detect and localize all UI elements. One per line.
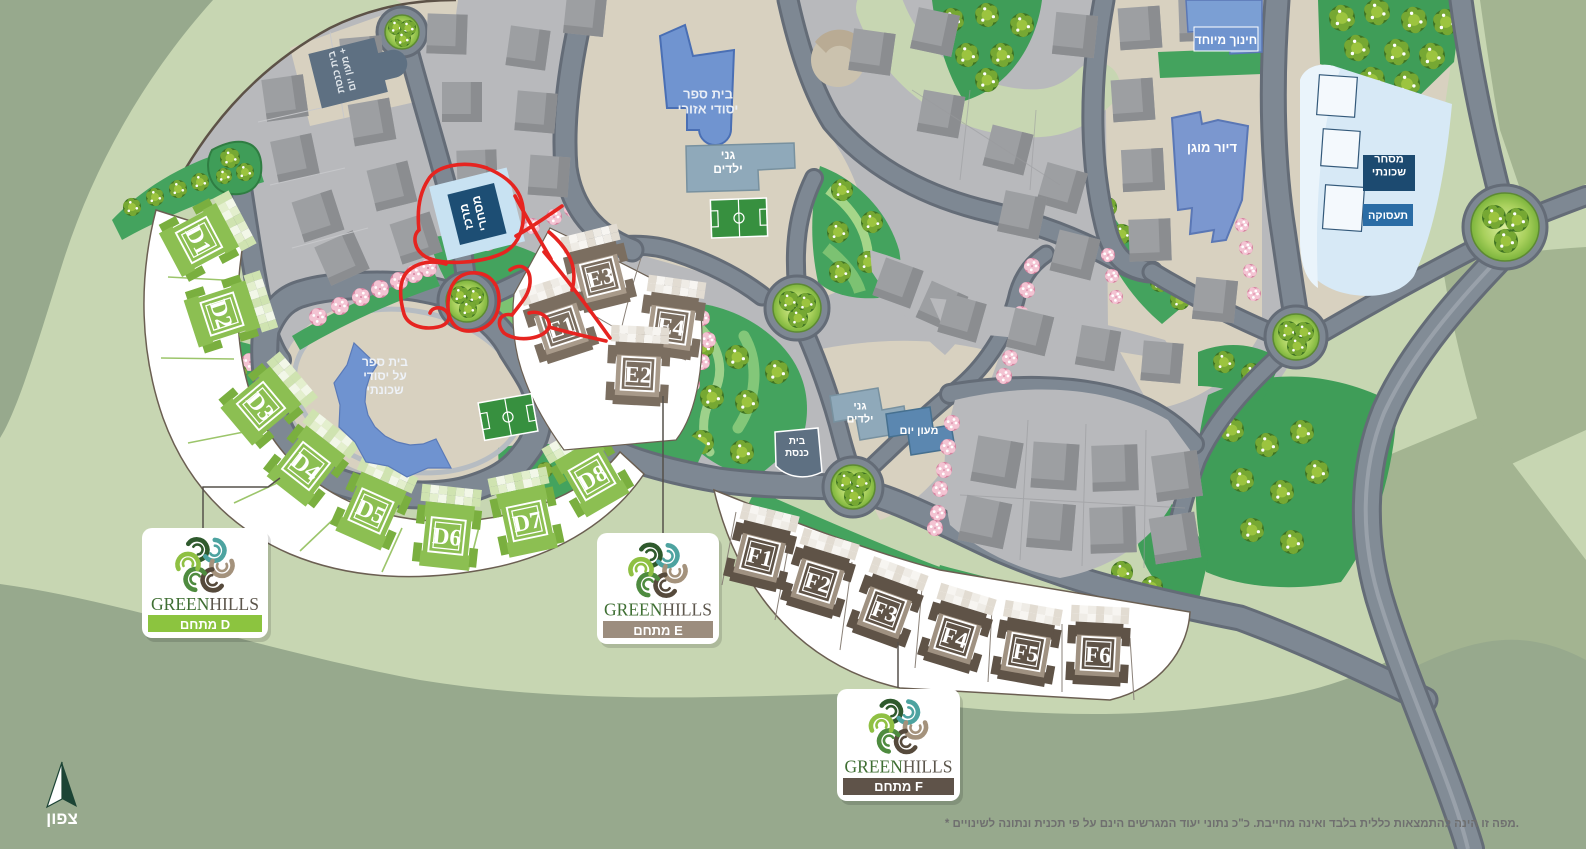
svg-text:ילדים: ילדים (713, 162, 743, 176)
svg-text:ילדים: ילדים (846, 412, 873, 425)
svg-text:גני: גני (721, 148, 736, 162)
svg-text:מעון יום: מעון יום (900, 425, 939, 437)
svg-text:דיור מוגן: דיור מוגן (1187, 140, 1237, 155)
svg-text:בית ספר: בית ספר (362, 355, 408, 369)
svg-text:תעסוקה: תעסוקה (1368, 210, 1408, 222)
svg-text:F5: F5 (1011, 638, 1041, 667)
svg-text:שכונתי: שכונתי (366, 383, 404, 397)
svg-text:שכונתי: שכונתי (1372, 167, 1406, 179)
svg-text:בית ספר: בית ספר (683, 87, 733, 102)
svg-text:צפון: צפון (46, 809, 78, 828)
svg-text:בית: בית (789, 436, 806, 447)
svg-text:חינוך מיוחד: חינוך מיוחד (1195, 33, 1257, 47)
svg-text:מסחר: מסחר (1374, 154, 1404, 166)
svg-text:מתחם E: מתחם E (633, 623, 683, 638)
svg-text:מתחם D: מתחם D (180, 617, 230, 632)
svg-text:GREENHILLS: GREENHILLS (151, 594, 259, 614)
svg-text:גני: גני (853, 401, 866, 413)
svg-text:כנסת: כנסת (785, 448, 809, 459)
svg-text:* מפה זו הינה להתמצאות כללית ב: * מפה זו הינה להתמצאות כללית בלבד ואינה … (945, 817, 1519, 830)
svg-text:GREENHILLS: GREENHILLS (604, 600, 712, 620)
svg-text:D6: D6 (431, 523, 463, 552)
svg-text:GREENHILLS: GREENHILLS (845, 756, 953, 776)
svg-text:E2: E2 (624, 362, 652, 388)
svg-text:יסודי אזורי: יסודי אזורי (678, 102, 739, 117)
svg-text:על יסודי: על יסודי (363, 369, 407, 383)
svg-text:מתחם F: מתחם F (874, 779, 923, 794)
svg-text:F6: F6 (1085, 642, 1112, 668)
